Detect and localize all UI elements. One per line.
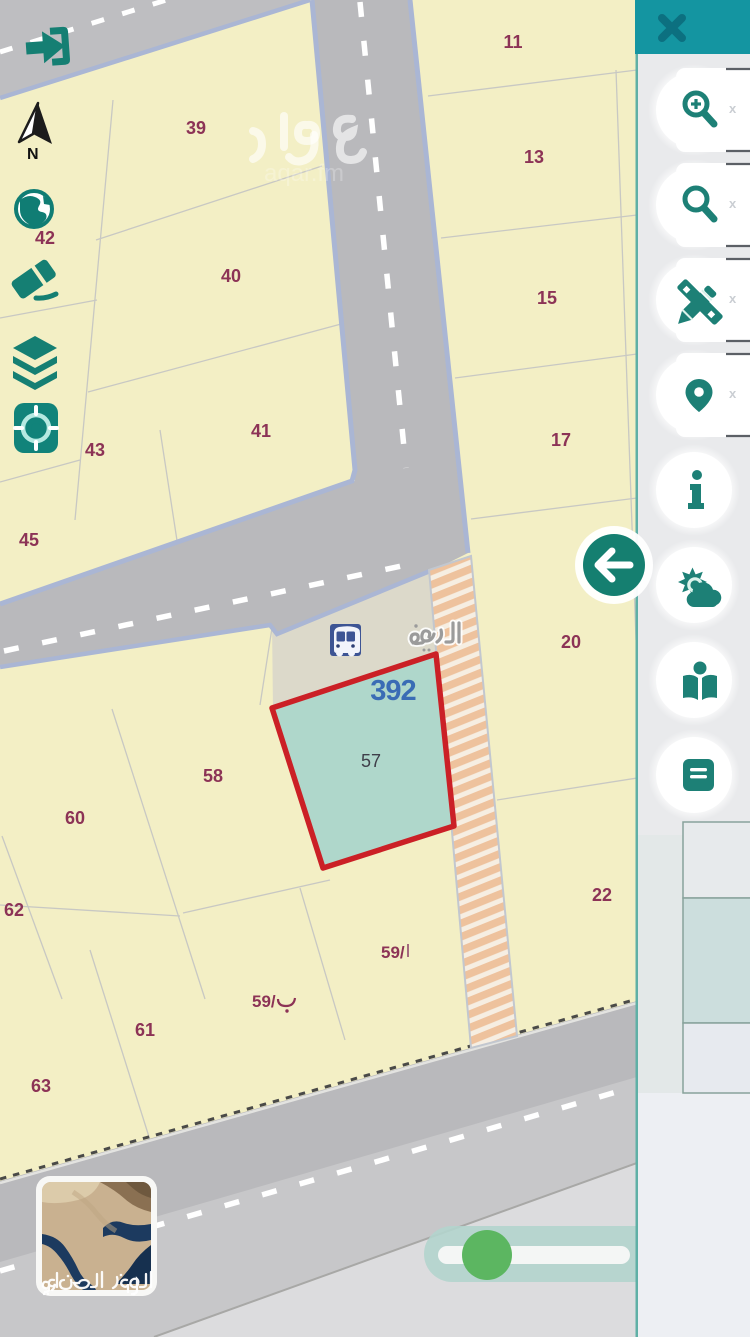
- svg-text:x: x: [729, 291, 737, 306]
- svg-text:63: 63: [31, 1076, 51, 1096]
- svg-text:40: 40: [221, 266, 241, 286]
- svg-text:39: 39: [186, 118, 206, 138]
- svg-text:x: x: [729, 196, 737, 211]
- svg-text:57: 57: [361, 751, 381, 771]
- svg-text:N: N: [27, 146, 39, 163]
- svg-text:aqar.fm: aqar.fm: [264, 160, 344, 187]
- svg-text:11: 11: [503, 32, 522, 52]
- svg-text:392: 392: [370, 675, 415, 707]
- svg-text:13: 13: [524, 147, 544, 167]
- svg-text:62: 62: [4, 900, 24, 920]
- svg-text:59/: 59/: [252, 992, 276, 1011]
- svg-text:x: x: [729, 101, 737, 116]
- svg-text:58: 58: [203, 766, 223, 786]
- svg-text:61: 61: [135, 1020, 155, 1040]
- svg-text:20: 20: [561, 632, 581, 652]
- svg-text:45: 45: [19, 530, 39, 550]
- svg-text:59/: 59/: [381, 943, 405, 962]
- svg-text:15: 15: [537, 288, 557, 308]
- svg-text:41: 41: [251, 421, 271, 441]
- svg-text:22: 22: [592, 885, 612, 905]
- svg-text:60: 60: [65, 808, 85, 828]
- svg-text:x: x: [729, 386, 737, 401]
- svg-text:17: 17: [551, 430, 571, 450]
- svg-text:42: 42: [35, 228, 55, 248]
- svg-text:43: 43: [85, 440, 105, 460]
